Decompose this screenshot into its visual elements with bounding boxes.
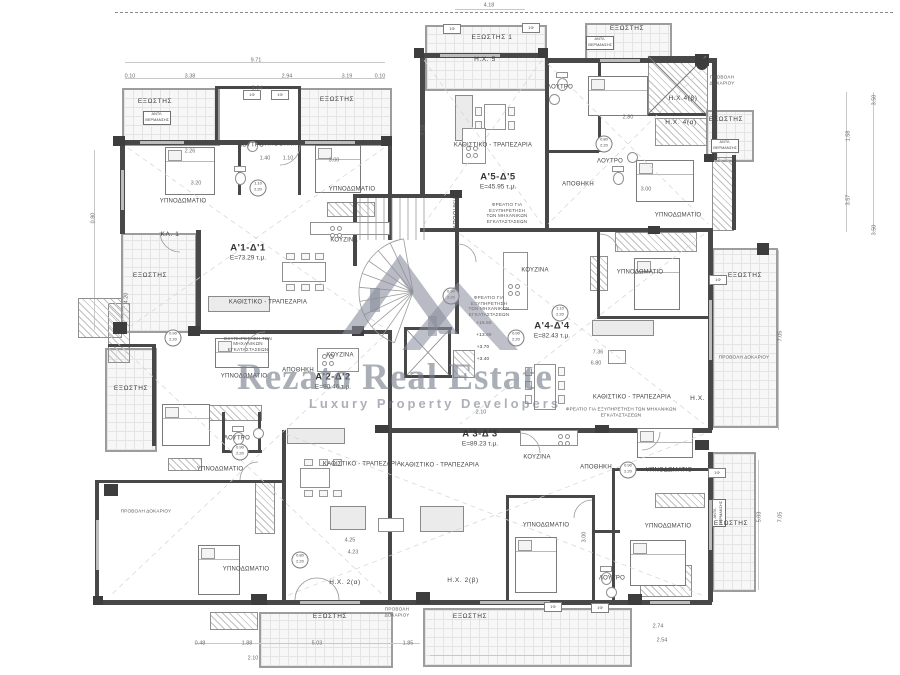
dimension-value: 3.57 — [846, 195, 853, 206]
bed-line — [199, 559, 239, 560]
dimension-value: 1.40 — [260, 156, 271, 163]
sofa-furniture-4 — [330, 506, 366, 530]
dimension-value: 4.20 — [124, 293, 131, 304]
window-opening-5 — [480, 601, 550, 604]
shaft-note: ΦΡΕΑΤΙΟ ΓΙΑ ΕΞΥΠΗΡΕΤΗΣΗ ΤΩΝ ΜΗΧΑΝΙΚΩΝ ΕΓ… — [484, 202, 530, 224]
room-label: ΑΠΟΘΗΚΗ — [580, 464, 612, 472]
balcony-label: ΚΛ. 1 — [161, 231, 180, 239]
dimension-value: 7.36 — [593, 350, 604, 357]
room-label: ΑΠΟΘΗΚΗ — [562, 181, 594, 189]
chair-2-3 — [508, 121, 515, 130]
bed-furniture-3 — [636, 160, 694, 202]
balcony-tiles-8 — [105, 348, 157, 452]
chair-3-1 — [304, 490, 313, 497]
door-width: 0.90 — [236, 445, 244, 450]
room-label: ΛΟΥΤΡΟ — [597, 158, 623, 166]
column-16 — [595, 425, 609, 433]
apartment-area: Ε=90.46 τ.μ. — [315, 384, 351, 391]
door-size-tag: 0.902.20 — [443, 288, 460, 305]
door-height: 2.20 — [447, 295, 455, 300]
window-schedule-tag: 1Φ 1.60/2.20 — [522, 23, 540, 33]
dining-table-0 — [282, 262, 326, 282]
semi-open-space-label: Η.Χ. 3 — [690, 395, 712, 403]
window-schedule-tag: 1Φ 1.60/2.20 — [709, 275, 727, 285]
room-label: ΑΠΟΘΗΚΗ — [453, 197, 461, 229]
chair-1-0 — [525, 367, 532, 376]
apartment-id: Α'2-Δ'2 — [315, 372, 351, 383]
wall-segment-48 — [215, 86, 218, 142]
room-label: ΚΑΘΙΣΤΙΚΟ - ΤΡΑΠΕΖΑΡΙΑ — [454, 142, 532, 150]
chair-3-0 — [304, 459, 313, 466]
dimension-value: 3.50 — [872, 95, 879, 106]
wall-segment-38 — [448, 327, 451, 378]
balcony-label: ΕΞΩΣΤΗΣ — [728, 272, 762, 280]
room-label: ΥΠΝΟΔΩΜΑΤΙΟ — [329, 186, 375, 194]
room-label: ΚΑΘΙΣΤΙΚΟ - ΤΡΑΠΕΖΑΡΙΑ — [229, 299, 307, 307]
stove-burner-2-1 — [515, 284, 520, 289]
apartment-id: Α'5-Δ'5 — [480, 172, 516, 183]
balcony-label: ΕΞΩΣΤΗΣ — [138, 98, 172, 106]
room-label: ΛΟΥΤΡΟ — [238, 142, 264, 150]
apartment-area: Ε=73.29 τ.μ. — [230, 255, 266, 262]
beam-projection-note: ΠΡΟΒΟΛΗ ΔΟΚΑΡΙΟΥ — [705, 75, 739, 86]
apartment-area: Ε=82.43 τ.μ. — [534, 333, 570, 340]
balcony-tiles-7 — [121, 233, 197, 333]
dimension-value: 7.05 — [778, 331, 785, 342]
window-schedule-tag: 1Φ 1.60/2.20 — [443, 24, 461, 34]
door-width: 0.90 — [624, 463, 632, 468]
column-1 — [381, 136, 392, 146]
bed-furniture-9 — [630, 540, 686, 586]
stove-burner-2-0 — [508, 284, 513, 289]
dimension-value: 0.48 — [195, 641, 206, 648]
apartment-label-Α'1-Δ'1: Α'1-Δ'1Ε=73.29 τ.μ. — [230, 243, 266, 262]
column-7 — [757, 243, 769, 255]
bed-furniture-4 — [634, 258, 680, 310]
dimension-value: 3.00 — [329, 158, 340, 165]
balcony-label: ΕΞΩΣΤΗΣ — [709, 116, 743, 124]
apartment-area: Ε=45.95 τ.μ. — [480, 184, 516, 191]
stove-burner-0-0 — [330, 226, 335, 231]
semi-open-space-label: Η.Χ. 2(β) — [447, 577, 479, 585]
dimension-value: 3.00 — [641, 187, 652, 194]
toilet-0 — [234, 166, 246, 185]
wall-segment-17 — [404, 327, 452, 330]
plot-boundary-line — [115, 12, 893, 13]
heat-pump-box: ΑΝΤΛ. ΘΕΡΜΑΝΣΗΣ — [711, 139, 739, 153]
window-opening-3 — [600, 59, 640, 62]
wall-segment-26 — [298, 143, 301, 195]
stove-burner-4-2 — [466, 153, 471, 158]
column-2 — [113, 322, 127, 334]
chair-3-3 — [319, 490, 328, 497]
wall-segment-12 — [597, 316, 708, 319]
wall-segment-4 — [353, 194, 459, 198]
bed-furniture-2 — [588, 76, 648, 116]
heat-pump-box: ΑΝΤΛ. ΘΕΡΜΑΝΣΗΣ — [143, 111, 171, 125]
room-label: ΚΑΘΙΣΤΙΚΟ - ΤΡΑΠΕΖΑΡΙΑ — [401, 462, 479, 470]
dimension-value: 2.74 — [653, 624, 664, 631]
bed-furniture-8 — [515, 537, 557, 593]
apartment-id: Α'4-Δ'4 — [534, 321, 570, 332]
room-label: ΛΟΥΤΡΟ — [547, 84, 573, 92]
dimension-value: 3.50 — [872, 225, 879, 236]
bed-pillow — [640, 431, 654, 442]
stove-burner-3-3 — [565, 441, 570, 446]
shaft-note: ΦΡΕΑΤΙΟ ΓΙΑ ΕΞΥΠΗΡΕΤΗΣΗ ΤΩΝ ΜΗΧΑΝΙΚΩΝ ΕΓ… — [561, 407, 681, 418]
chair-0-0 — [286, 253, 295, 260]
balcony-label: ΕΞΩΣΤΗΣ 1 — [472, 34, 513, 42]
wall-segment-45 — [592, 495, 595, 600]
apartment-id: Α'1-Δ'1 — [230, 243, 266, 254]
room-label: ΥΠΝΟΔΩΜΑΤΙΟ — [523, 522, 569, 530]
chair-1-4 — [525, 395, 532, 404]
window-opening-9 — [121, 170, 124, 210]
heat-pump-box: ΑΝΤΛ. ΘΕΡΜΑΝΣΗΣ — [586, 36, 614, 50]
apartment-label-Α'2-Δ'2: Α'2-Δ'2Ε=90.46 τ.μ. — [315, 372, 351, 391]
room-label: ΛΟΥΤΡΟ — [224, 435, 250, 443]
door-width: 0.80 — [600, 137, 608, 142]
chair-0-2 — [301, 253, 310, 260]
dimension-value: 1.58 — [846, 131, 853, 142]
sink-4 — [606, 587, 617, 598]
door-height: 2.20 — [236, 451, 244, 456]
semi-open-space-label: Η.Χ. 2(α) — [329, 579, 361, 587]
sink-1 — [549, 94, 560, 105]
sink-2 — [627, 152, 638, 163]
dimension-line-4 — [846, 92, 847, 232]
dimension-value: 1.88 — [242, 641, 253, 648]
balcony-label: ΕΞΩΣΤΗΣ — [133, 272, 167, 280]
bed-pillow — [168, 150, 182, 161]
dining-table-2 — [484, 104, 506, 130]
wall-segment-30 — [732, 155, 736, 230]
dimension-value: 2.94 — [282, 74, 293, 81]
bed-furniture-10 — [637, 428, 693, 458]
chair-3-5 — [333, 490, 342, 497]
wall-segment-15 — [592, 530, 620, 533]
door-size-tag: 1.102.20 — [552, 305, 569, 322]
window-schedule-tag: 1Φ 1.60/2.20 — [708, 468, 726, 478]
stove-burner-3-1 — [565, 434, 570, 439]
hatched-area-5 — [205, 405, 262, 421]
balcony-label: ΕΞΩΣΤΗΣ — [313, 613, 347, 621]
wall-segment-46 — [222, 412, 225, 452]
room-label: ΚΟΥΖΙΝΑ — [523, 454, 550, 462]
wall-segment-37 — [404, 327, 407, 378]
door-height: 2.20 — [600, 143, 608, 148]
hatched-area-4 — [327, 202, 375, 217]
door-width: 0.90 — [447, 289, 455, 294]
stove-burner-3-2 — [558, 441, 563, 446]
dimension-value: 5.03 — [312, 641, 323, 648]
bed-pillow — [639, 163, 653, 174]
room-label: ΑΠΟΘΗΚΗ — [282, 367, 314, 375]
door-size-tag: 1.102.20 — [250, 180, 267, 197]
bed-line — [638, 442, 692, 443]
balcony-label: ΕΞΩΣΤΗΣ — [714, 520, 748, 528]
dimension-value: 7.05 — [778, 512, 785, 523]
door-height: 2.20 — [624, 469, 632, 474]
dimension-value: 3.00 — [582, 532, 589, 543]
semi-open-space-label: Η.Χ.4(β) — [668, 95, 697, 103]
room-label: ΑΠΟΘΗΚΗ — [265, 141, 297, 149]
bed-line — [637, 174, 693, 175]
window-opening-1 — [305, 141, 355, 144]
beam-projection-note: ΠΡΟΒΟΛΗ ΔΟΚΑΡΙΟΥ — [380, 607, 414, 618]
dimension-value: 3.20 — [191, 181, 202, 188]
shaft-note: ΦΡΕΑΤΙΟ ΓΙΑ ΕΞΥΠΗΡΕΤΗΣΗ ΤΩΝ ΜΗΧΑΝΙΚΩΝ ΕΓ… — [467, 295, 511, 317]
room-label: ΛΟΥΤΡΟ — [599, 575, 625, 583]
balcony-label: ΕΞΩΣΤΗΣ — [610, 25, 644, 33]
wall-segment-20 — [108, 344, 156, 347]
window-opening-6 — [650, 601, 690, 604]
door-height: 2.20 — [296, 559, 304, 564]
bed-line — [631, 554, 685, 555]
chair-1-3 — [558, 381, 565, 390]
chair-0-1 — [286, 284, 295, 291]
beam-projection-note: ΠΡΟΒΟΛΗ ΔΟΚΑΡΙΟΥ — [699, 354, 789, 360]
dimension-value: 2.26 — [185, 149, 196, 156]
sink-3 — [253, 428, 264, 439]
dimension-value: 2.10 — [248, 656, 259, 663]
column-9 — [251, 594, 267, 605]
column-10 — [416, 592, 430, 604]
wall-segment-44 — [506, 495, 509, 600]
apartment-id: Α'3-Δ'3 — [462, 429, 498, 440]
sofa-furniture-3 — [287, 428, 345, 444]
chair-0-5 — [315, 284, 324, 291]
room-label: ΚΑΘΙΣΤΙΚΟ - ΤΡΑΠΕΖΑΡΙΑ — [593, 394, 671, 402]
column-11 — [628, 594, 642, 605]
door-width: 0.90 — [169, 331, 177, 336]
bed-pillow — [591, 79, 605, 90]
window-schedule-tag: 1Φ 1.60/2.20 — [591, 603, 609, 613]
balcony-tiles-0 — [122, 88, 220, 146]
hatched-area-9 — [655, 493, 705, 508]
dimension-value: 2.10 — [476, 410, 487, 417]
column-19 — [93, 596, 103, 605]
bed-pillow — [201, 548, 215, 559]
door-size-tag: 0.902.20 — [620, 462, 637, 479]
room-label: ΥΠΝΟΔΩΜΑΤΙΟ — [160, 198, 206, 206]
room-label: ΚΟΥΖΙΝΑ — [326, 352, 353, 360]
column-17 — [648, 226, 660, 234]
dimension-value: 1.10 — [283, 156, 294, 163]
dimension-line-2 — [195, 643, 420, 644]
chair-1-1 — [558, 367, 565, 376]
level-marker: +3.40 — [477, 356, 490, 362]
column-3 — [188, 326, 200, 336]
bed-line — [163, 418, 209, 419]
wall-segment-10 — [95, 480, 282, 483]
dimension-value: 1.85 — [403, 641, 414, 648]
wall-segment-19 — [648, 113, 706, 116]
dimension-value: 4.23 — [348, 550, 359, 557]
door-width: 0.90 — [512, 331, 520, 336]
dimension-value: 4.18 — [484, 3, 495, 10]
window-opening-10 — [96, 520, 99, 570]
dimension-value: 0.10 — [125, 74, 136, 81]
balcony-label: ΕΞΩΣΤΗΣ — [320, 96, 354, 104]
window-opening-0 — [140, 141, 184, 144]
hatched-area-1 — [712, 157, 734, 231]
hatched-area-10 — [255, 482, 275, 534]
door-height: 2.20 — [169, 337, 177, 342]
room-label: ΥΠΝΟΔΩΜΑΤΙΟ — [646, 467, 692, 475]
apartment-area: Ε=89.23 τ.μ. — [462, 441, 498, 448]
apartment-label-Α'3-Δ'3: Α'3-Δ'3Ε=89.23 τ.μ. — [462, 429, 498, 448]
balcony-label: ΕΞΩΣΤΗΣ — [453, 613, 487, 621]
column-6 — [695, 54, 709, 66]
room-label: ΥΠΝΟΔΩΜΑΤΙΟ — [655, 212, 701, 220]
level-marker: +15.50 — [476, 320, 491, 326]
column-8 — [695, 440, 709, 450]
bed-line — [589, 90, 647, 91]
chair-0-3 — [301, 284, 310, 291]
wall-segment-14 — [506, 495, 592, 498]
room-label: ΚΑΘΙΣΤΙΚΟ - ΤΡΑΠΕΖΑΡΙΑ — [323, 461, 401, 469]
bed-pillow — [633, 543, 647, 554]
shaft-note: ΦΡΕΑΤΙΟ ΓΙΑ ΕΞΥΠΗΡΕΤΗΣΗ ΤΩΝ ΜΗΧΑΝΙΚΩΝ ΕΓ… — [218, 330, 278, 352]
dimension-value: 3.19 — [342, 74, 353, 81]
coffee-table-1 — [378, 518, 404, 532]
window-schedule-tag: 1Φ 1.60/2.20 — [271, 90, 289, 100]
toilet-bowl — [235, 172, 246, 185]
chair-1-5 — [558, 395, 565, 404]
window-schedule-tag: 1Φ 1.60/2.20 — [544, 602, 562, 612]
dimension-value: 2.54 — [657, 638, 668, 645]
coffee-table-0 — [608, 350, 626, 364]
chair-1-2 — [525, 381, 532, 390]
dimension-value: 3.38 — [185, 74, 196, 81]
wall-segment-23 — [196, 230, 201, 334]
door-width: 1.10 — [254, 181, 262, 186]
dining-table-1 — [534, 364, 556, 410]
wall-segment-6 — [420, 228, 712, 232]
wall-segment-11 — [547, 150, 599, 153]
column-5 — [538, 48, 548, 58]
chair-2-1 — [508, 107, 515, 116]
balcony-label: ΕΞΩΣΤΗΣ — [114, 385, 148, 393]
beam-projection-note: ΠΡΟΒΟΛΗ ΔΟΚΑΡΙΟΥ — [101, 508, 191, 514]
room-label: ΚΟΥΖΙΝΑ — [330, 237, 357, 245]
door-size-tag: 0.802.20 — [292, 552, 309, 569]
window-opening-4 — [300, 601, 360, 604]
hatched-area-13 — [453, 350, 475, 378]
bed-line — [216, 352, 268, 353]
door-height: 2.20 — [512, 337, 520, 342]
dimension-value: 7.15 — [421, 125, 428, 136]
column-0 — [113, 136, 125, 146]
floorplan-canvas: Α'1-Δ'1Ε=73.29 τ.μ.Α'2-Δ'2Ε=90.46 τ.μ.Α'… — [0, 0, 900, 675]
apartment-label-Α'5-Δ'5: Α'5-Δ'5Ε=45.95 τ.μ. — [480, 172, 516, 191]
door-size-tag: 0.902.20 — [508, 330, 525, 347]
door-size-tag: 0.902.20 — [165, 330, 182, 347]
wall-segment-49 — [298, 86, 301, 142]
dining-table-3 — [300, 468, 330, 488]
column-18 — [704, 154, 714, 162]
room-label: ΚΟΥΖΙΝΑ — [521, 267, 548, 275]
semi-open-space-label: Η.Χ. 5 — [474, 56, 496, 64]
dimension-value: 4.25 — [345, 538, 356, 545]
dimension-value: 5.03 — [757, 512, 764, 523]
kitchen-counter-0 — [310, 222, 390, 235]
room-label: ΥΠΝΟΔΩΜΑΤΙΟ — [197, 466, 243, 474]
toilet-2 — [612, 166, 624, 185]
window-opening-7 — [709, 300, 712, 360]
dimension-value: 9.71 — [251, 58, 262, 65]
bed-line — [516, 551, 556, 552]
wall-segment-35 — [152, 346, 156, 446]
chair-2-0 — [475, 107, 482, 116]
hatched-area-8 — [615, 232, 697, 252]
room-label: ΥΠΝΟΔΩΜΑΤΙΟ — [645, 523, 691, 531]
wall-segment-42 — [597, 230, 600, 319]
chair-0-4 — [315, 253, 324, 260]
door-height: 2.20 — [556, 312, 564, 317]
bed-furniture-6 — [162, 404, 210, 446]
sofa-furniture-5 — [420, 506, 464, 532]
wall-segment-36 — [282, 430, 286, 602]
dimension-line-6 — [758, 460, 759, 590]
hatched-area-11 — [210, 612, 258, 630]
stove-burner-1-2 — [322, 361, 327, 366]
stove-burner-2-3 — [515, 291, 520, 296]
dimension-line-9 — [430, 655, 630, 656]
dimension-value: 6.80 — [591, 361, 602, 368]
room-label: ΥΠΝΟΔΩΜΑΤΙΟ — [221, 373, 267, 381]
window-schedule-tag: 1Φ 1.60/2.20 — [243, 90, 261, 100]
apartment-label-Α'4-Δ'4: Α'4-Δ'4Ε=82.43 τ.μ. — [534, 321, 570, 340]
bed-pillow — [518, 540, 532, 551]
column-13 — [352, 326, 364, 336]
wall-segment-18 — [404, 375, 452, 378]
stove-burner-1-3 — [329, 361, 334, 366]
room-label: ΥΠΝΟΔΩΜΑΤΙΟ — [223, 566, 269, 574]
room-label: ΥΠΝΟΔΩΜΑΤΙΟ — [617, 269, 663, 277]
stove-burner-0-1 — [337, 226, 342, 231]
stove-burner-4-3 — [473, 153, 478, 158]
door-width: 0.80 — [296, 553, 304, 558]
dimension-value: 0.10 — [375, 74, 386, 81]
door-height: 2.20 — [254, 187, 262, 192]
level-marker: +13.90 — [476, 332, 491, 338]
bed-line — [166, 161, 214, 162]
door-width: 1.10 — [556, 306, 564, 311]
column-12 — [104, 484, 118, 496]
semi-open-space-label: Η.Χ. 4(α) — [665, 119, 697, 127]
column-4 — [414, 48, 424, 58]
dimension-value: 2.80 — [623, 115, 634, 122]
door-size-tag: 0.902.20 — [232, 444, 249, 461]
dimension-line-3 — [873, 92, 874, 232]
dimension-value: 0.80 — [91, 213, 98, 224]
bed-pillow — [165, 407, 179, 418]
column-15 — [375, 425, 389, 433]
door-size-tag: 0.802.20 — [596, 136, 613, 153]
level-marker: +3.70 — [477, 344, 490, 350]
sofa-furniture-2 — [592, 320, 654, 336]
stove-burner-3-0 — [558, 434, 563, 439]
toilet-bowl — [613, 172, 624, 185]
